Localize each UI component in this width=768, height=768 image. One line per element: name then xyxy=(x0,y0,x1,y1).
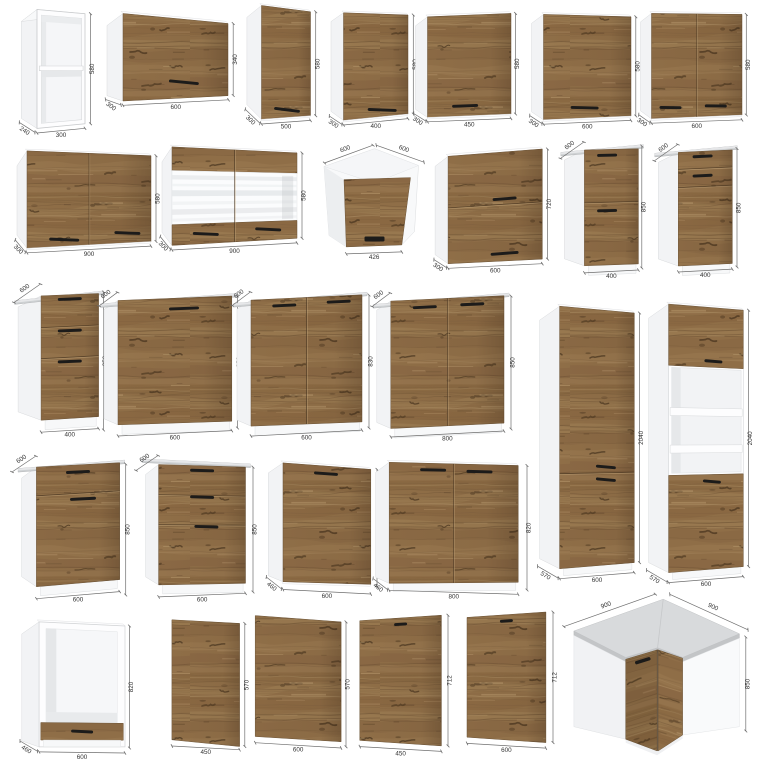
svg-text:400: 400 xyxy=(65,432,76,439)
svg-text:850: 850 xyxy=(252,524,259,535)
svg-text:600: 600 xyxy=(501,747,512,754)
svg-text:426: 426 xyxy=(369,254,380,261)
svg-text:600: 600 xyxy=(490,267,501,274)
svg-text:850: 850 xyxy=(124,524,131,535)
svg-text:570: 570 xyxy=(345,679,352,690)
svg-text:800: 800 xyxy=(448,594,459,601)
svg-text:450: 450 xyxy=(464,121,475,128)
svg-text:600: 600 xyxy=(301,434,312,441)
svg-text:850: 850 xyxy=(640,201,647,212)
svg-text:500: 500 xyxy=(281,124,292,131)
svg-text:400: 400 xyxy=(606,273,617,280)
svg-text:600: 600 xyxy=(582,124,593,131)
svg-text:580: 580 xyxy=(155,193,162,204)
svg-text:580: 580 xyxy=(301,190,308,201)
svg-text:600: 600 xyxy=(197,596,208,603)
svg-text:600: 600 xyxy=(170,435,181,442)
svg-text:600: 600 xyxy=(592,577,603,584)
svg-text:850: 850 xyxy=(510,357,517,368)
svg-text:830: 830 xyxy=(368,356,375,367)
svg-text:820: 820 xyxy=(526,522,533,533)
svg-text:712: 712 xyxy=(447,675,454,686)
svg-text:580: 580 xyxy=(314,58,321,69)
svg-text:600: 600 xyxy=(701,581,712,588)
svg-text:2040: 2040 xyxy=(747,431,754,446)
svg-text:800: 800 xyxy=(442,435,453,442)
svg-text:850: 850 xyxy=(744,678,751,689)
svg-text:600: 600 xyxy=(322,593,333,600)
svg-text:600: 600 xyxy=(293,747,304,754)
svg-text:580: 580 xyxy=(89,63,96,74)
svg-text:340: 340 xyxy=(232,54,239,65)
svg-text:580: 580 xyxy=(514,58,521,69)
svg-text:600: 600 xyxy=(692,123,703,130)
svg-text:720: 720 xyxy=(546,198,553,209)
svg-text:600: 600 xyxy=(73,597,84,604)
svg-text:600: 600 xyxy=(77,754,88,761)
svg-text:900: 900 xyxy=(229,248,240,255)
svg-text:900: 900 xyxy=(84,251,95,258)
svg-text:300: 300 xyxy=(56,132,67,139)
svg-text:820: 820 xyxy=(128,681,135,692)
svg-text:600: 600 xyxy=(171,104,182,111)
svg-text:850: 850 xyxy=(736,202,743,213)
svg-text:400: 400 xyxy=(371,123,382,130)
svg-text:2040: 2040 xyxy=(638,430,645,445)
svg-text:450: 450 xyxy=(201,749,212,756)
svg-text:400: 400 xyxy=(700,272,711,279)
svg-text:580: 580 xyxy=(745,59,752,70)
svg-text:450: 450 xyxy=(395,750,406,757)
svg-text:570: 570 xyxy=(243,679,250,690)
svg-text:712: 712 xyxy=(552,672,559,683)
